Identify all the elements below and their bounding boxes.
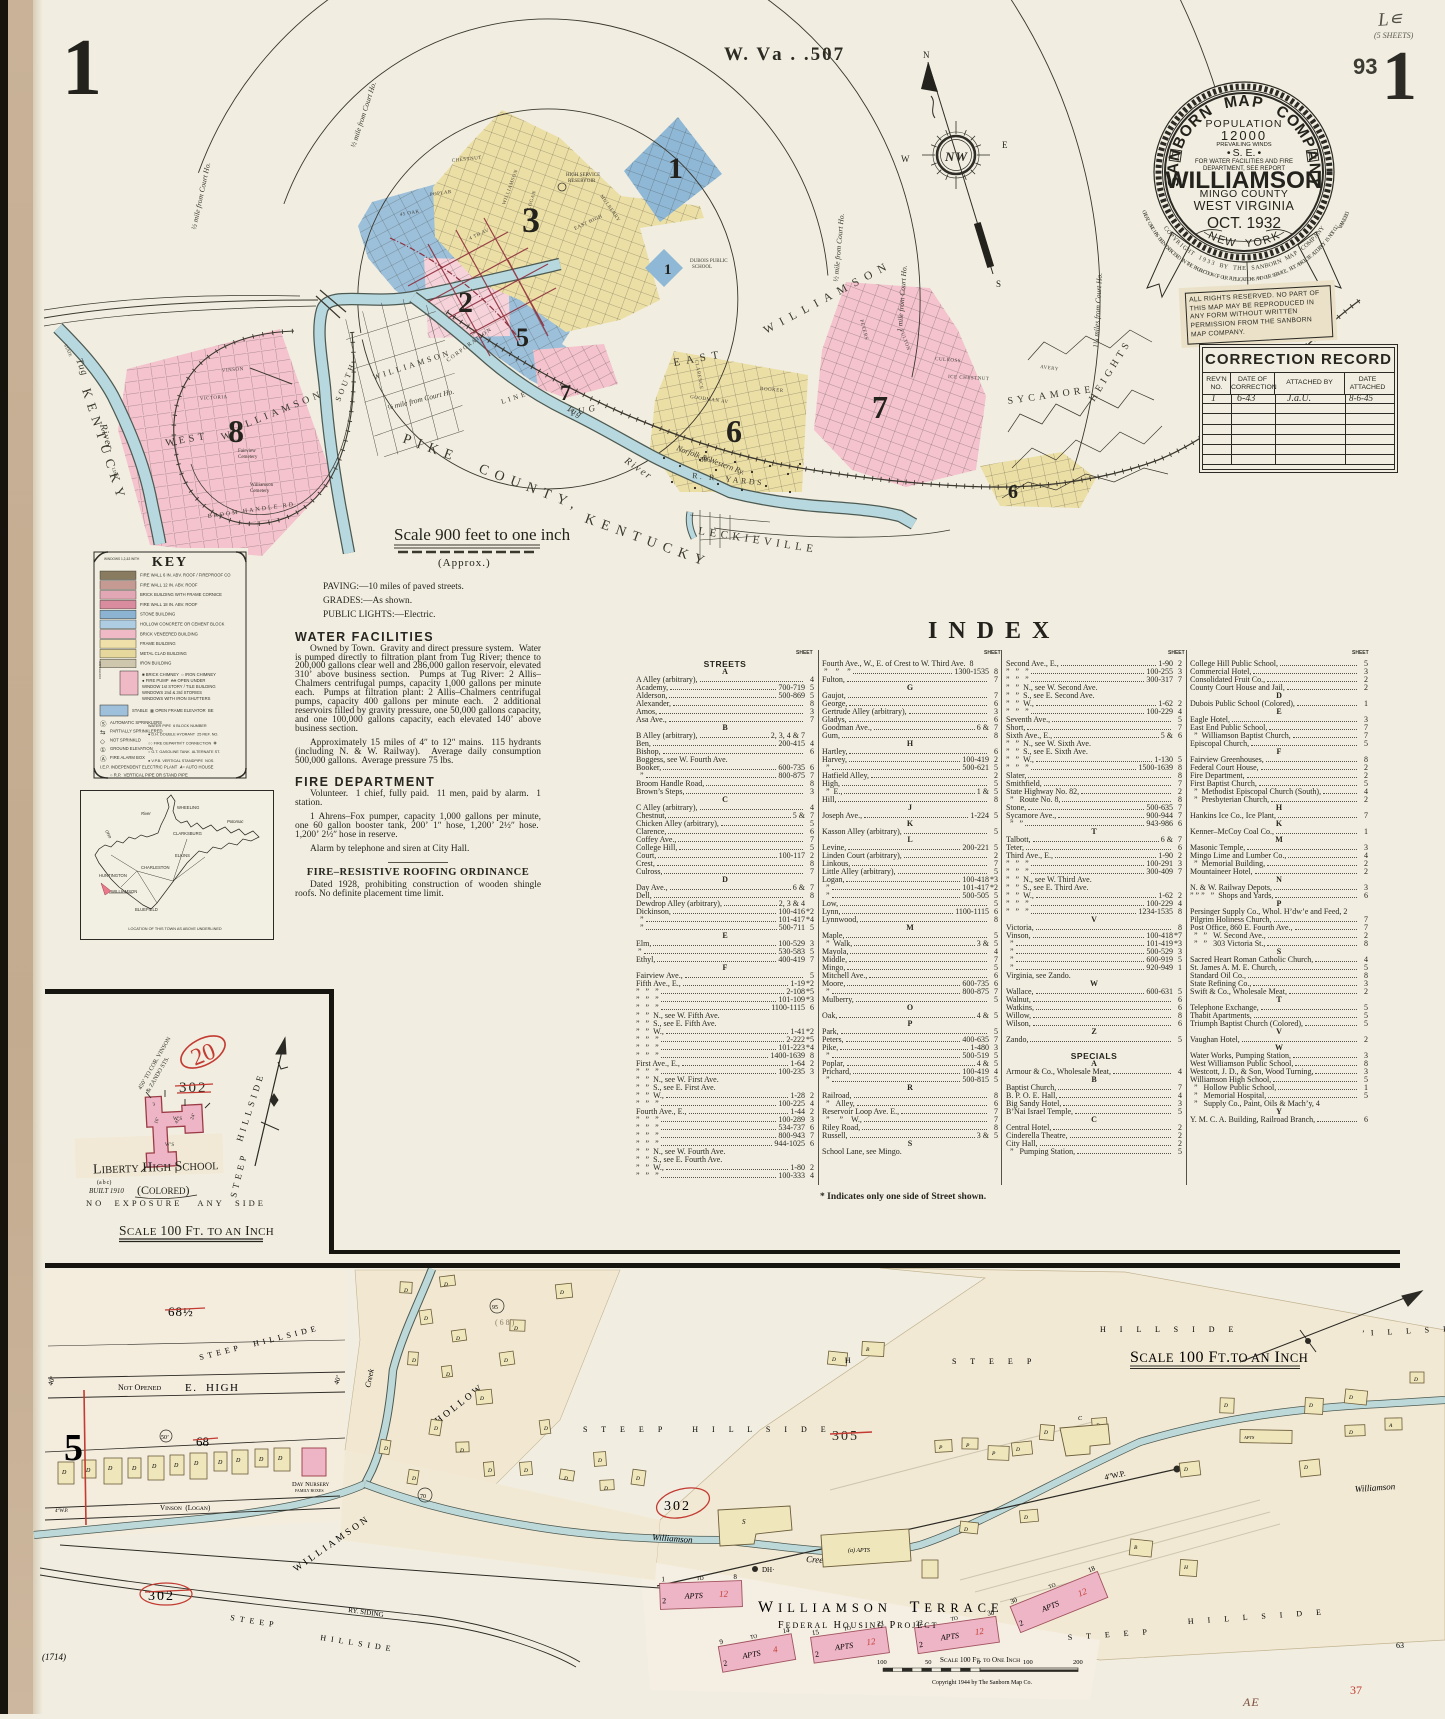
svg-text:H I L L S I D E: H I L L S I D E	[1100, 1325, 1239, 1334]
svg-text:D: D	[559, 1290, 564, 1296]
svg-text:• S. E. •: • S. E. •	[1227, 147, 1262, 159]
svg-text:D: D	[411, 1476, 416, 1482]
svg-text:D: D	[455, 1336, 460, 1342]
svg-text:S: S	[742, 1518, 746, 1526]
svg-text:½ mile from Court Ho.: ½ mile from Court Ho.	[348, 81, 378, 149]
svg-text:Potomac: Potomac	[227, 819, 244, 824]
svg-text:SCHOOL: SCHOOL	[692, 265, 712, 270]
svg-text:NOT OPENED: NOT OPENED	[118, 1383, 161, 1392]
svg-text:CONTINUED: CONTINUED	[98, 660, 102, 679]
svg-text:○○ FIRE DEPARTMʼT CONNECTION: ○○ FIRE DEPARTMʼT CONNECTION ✚	[148, 741, 217, 745]
svg-text:D: D	[193, 1461, 199, 1467]
svg-text:S T E E P H I L L S I D E: S T E E P H I L L S I D E	[583, 1425, 832, 1434]
svg-text:Ohio: Ohio	[104, 829, 113, 840]
svg-text:D: D	[411, 1358, 416, 1364]
svg-text:APTS: APTS	[1243, 1435, 1255, 1440]
svg-text:D: D	[107, 1466, 113, 1472]
svg-text:Ⓢ: Ⓢ	[100, 720, 107, 728]
svg-text:BRICK VENEERED BUILDING: BRICK VENEERED BUILDING	[140, 631, 198, 636]
svg-text:(a b c): (a b c)	[97, 1179, 111, 1186]
svg-text:STONE BUILDING: STONE BUILDING	[140, 612, 175, 617]
svg-text:①: ①	[100, 746, 106, 754]
svg-text:200: 200	[1073, 1659, 1083, 1666]
svg-text:W: W	[901, 154, 910, 164]
svg-text:○ R.P. VERTICAL PIPE OR STAND: ○ R.P. VERTICAL PIPE OR STAND PIPE	[110, 773, 188, 778]
svg-text:WATER PIPE 6 BLOCK NUMBER: WATER PIPE 6 BLOCK NUMBER	[148, 724, 207, 728]
svg-text:D: D	[563, 1476, 568, 1482]
svg-text:6: 6	[1008, 481, 1018, 503]
svg-text:IRON BUILDING: IRON BUILDING	[140, 661, 171, 666]
svg-text:D: D	[1348, 1395, 1353, 1401]
svg-text:FIRE WALL 12 IN. ABV. ROOF: FIRE WALL 12 IN. ABV. ROOF	[140, 582, 198, 587]
svg-text:D: D	[831, 1357, 836, 1363]
svg-text:5: 5	[516, 323, 529, 352]
svg-text:WINDOWS 2nd & 3rd STORIES: WINDOWS 2nd & 3rd STORIES	[142, 690, 202, 695]
svg-text:50: 50	[925, 1659, 932, 1666]
svg-text:A: A	[1388, 1423, 1393, 1429]
svg-text:● FIRE PUMP ⍾⍾ OPEN UNDER: ● FIRE PUMP ⍾⍾ OPEN UNDER	[142, 678, 205, 683]
svg-text:0: 0	[977, 1659, 980, 1666]
svg-text:PIKE: PIKE	[401, 432, 462, 466]
svg-text:SYCAMORE: SYCAMORE	[1007, 384, 1095, 407]
svg-text:D: D	[1015, 1447, 1020, 1453]
svg-text:Ⓐ: Ⓐ	[100, 755, 107, 763]
svg-text:METAL CLAD BUILDING: METAL CLAD BUILDING	[140, 651, 187, 656]
svg-text:(68): (68)	[495, 1318, 516, 1327]
svg-text:GROUND ELEVATION: GROUND ELEVATION	[110, 746, 153, 751]
svg-text:OCT. 1932: OCT. 1932	[1207, 215, 1281, 232]
svg-text:(1714): (1714)	[42, 1652, 66, 1662]
svg-text:WILLIAMSON: WILLIAMSON	[292, 1514, 372, 1575]
svg-text:NO EXPOSURE ANY SIDE: NO EXPOSURE ANY SIDE	[86, 1198, 266, 1208]
svg-text:302: 302	[664, 1499, 691, 1514]
svg-text:306: 306	[700, 456, 711, 464]
svg-text:D: D	[503, 1358, 508, 1364]
svg-text:● V.P.B. VERTICAL STANDPIPE N: ● V.P.B. VERTICAL STANDPIPE NOS.	[148, 759, 214, 763]
svg-text:D: D	[523, 1468, 528, 1474]
svg-text:70: 70	[420, 1494, 426, 1500]
svg-text:½ mile from Court Ho.: ½ mile from Court Ho.	[189, 161, 212, 230]
svg-text:D: D	[443, 1282, 448, 1288]
svg-text:SCALE 100 FT. TO AN INCH: SCALE 100 FT. TO AN INCH	[119, 1223, 274, 1238]
svg-text:Copyright 1944 by The Sanborn: Copyright 1944 by The Sanborn Map Co.	[932, 1680, 1033, 1686]
svg-text:RESERVOIR: RESERVOIR	[568, 179, 596, 184]
svg-text:D: D	[459, 1448, 464, 1454]
svg-text:50ʼ: 50ʼ	[161, 1435, 169, 1441]
svg-text:D: D	[597, 1458, 602, 1464]
svg-text:(a) APTS: (a) APTS	[848, 1547, 870, 1554]
svg-text:2: 2	[458, 286, 473, 319]
svg-text:WINDOWS WITH IRON SHUTTERS: WINDOWS WITH IRON SHUTTERS	[142, 696, 211, 701]
svg-text:S: S	[996, 279, 1001, 289]
svg-text:D: D	[1348, 1430, 1353, 1436]
svg-text:12: 12	[719, 1589, 729, 1599]
svg-text:7: 7	[560, 380, 571, 405]
svg-text:BLUEFIELD: BLUEFIELD	[135, 907, 158, 912]
svg-text:D: D	[1308, 1403, 1313, 1409]
svg-text:Cemetery: Cemetery	[238, 455, 258, 460]
svg-text:5: 5	[64, 1427, 83, 1469]
svg-text:D: D	[487, 1468, 492, 1474]
svg-text:Fairview: Fairview	[238, 449, 256, 454]
svg-text:HUNTINGTON: HUNTINGTON	[99, 873, 127, 878]
svg-text:68½: 68½	[168, 1304, 194, 1319]
svg-text:P: P	[938, 1445, 943, 1451]
svg-text:River: River	[141, 811, 151, 816]
svg-text:BRICK BUILDING WITH FRAME CORN: BRICK BUILDING WITH FRAME CORNICE	[140, 592, 222, 597]
svg-text:1: 1	[668, 152, 683, 185]
svg-text:○ G.T. GASOLINE TANK ALTERNAT: ○ G.T. GASOLINE TANK ALTERNATE ST.	[148, 750, 220, 754]
svg-text:100: 100	[1023, 1659, 1033, 1666]
svg-text:D: D	[131, 1466, 137, 1472]
svg-text:VINSON (LOGAN): VINSON (LOGAN)	[160, 1504, 211, 1512]
svg-text:95: 95	[492, 1305, 498, 1311]
svg-text:FOR WATER FACILITIES AND FIRE: FOR WATER FACILITIES AND FIRE	[1195, 159, 1293, 165]
svg-text:E: E	[1002, 140, 1008, 150]
svg-text:FIRE ALARM BOX: FIRE ALARM BOX	[110, 755, 145, 760]
svg-text:D: D	[151, 1464, 157, 1470]
svg-text:D: D	[173, 1463, 179, 1469]
svg-text:ELKINS: ELKINS	[175, 853, 190, 858]
svg-text:2: 2	[662, 1596, 666, 1605]
svg-text:FRAME BUILDING: FRAME BUILDING	[140, 641, 176, 646]
svg-text:NOT SPRINKLD: NOT SPRINKLD	[110, 737, 141, 742]
svg-text:DAY NURSERY: DAY NURSERY	[292, 1481, 330, 1488]
svg-text:CLARKSBURG: CLARKSBURG	[173, 831, 202, 836]
svg-text:LINE: LINE	[500, 390, 529, 406]
svg-text:SCALE 100 FT.TO AN INCH: SCALE 100 FT.TO AN INCH	[1130, 1349, 1308, 1366]
svg-text:HIGH SERVICE: HIGH SERVICE	[566, 173, 600, 178]
svg-text:HILLSIDE: HILLSIDE	[234, 1071, 266, 1143]
svg-text:37: 37	[1350, 1683, 1362, 1697]
svg-text:N: N	[1276, 257, 1283, 265]
svg-text:FIRE WALL 18 IN. ABV. ROOF: FIRE WALL 18 IN. ABV. ROOF	[140, 602, 198, 607]
svg-text:D: D	[235, 1458, 241, 1464]
svg-text:Y: Y	[1223, 263, 1229, 271]
svg-text:STABLE ▦ OPEN FRAME ELEVATOR: STABLE ▦ OPEN FRAME ELEVATOR BE	[132, 708, 214, 713]
svg-text:E: E	[1242, 265, 1246, 272]
svg-text:DUBOIS PUBLIC: DUBOIS PUBLIC	[690, 259, 728, 264]
svg-text:N: N	[923, 50, 930, 60]
svg-text:WHEELING: WHEELING	[177, 805, 199, 810]
svg-text:(COLORED): (COLORED)	[137, 1183, 190, 1197]
svg-text:FAMILY BOXES: FAMILY BOXES	[295, 1488, 324, 1493]
svg-text:302: 302	[179, 1080, 208, 1096]
svg-text:D: D	[445, 1372, 450, 1378]
svg-text:AVERY: AVERY	[1040, 365, 1059, 373]
svg-text:RY. SIDING: RY. SIDING	[348, 1606, 384, 1619]
svg-text:A E: A E	[1242, 1695, 1259, 1709]
svg-text:CHARLESTON: CHARLESTON	[141, 865, 170, 870]
svg-text:KENTUCKY: KENTUCKY	[583, 512, 713, 572]
svg-text:FEDERAL HOUSING PROJECT: FEDERAL HOUSING PROJECT	[778, 1620, 939, 1631]
svg-text:P: P	[965, 1443, 970, 1449]
svg-text:D: D	[61, 1470, 67, 1476]
svg-text:D: D	[479, 1396, 484, 1402]
svg-text:N W: N W	[944, 149, 968, 164]
svg-text:D: D	[383, 1446, 388, 1452]
svg-text:HOLLOW CONCRETE OR CEMENT BLOC: HOLLOW CONCRETE OR CEMENT BLOCK	[140, 622, 225, 627]
svg-text:STEEP: STEEP	[230, 1613, 279, 1629]
svg-text:Williamson: Williamson	[250, 483, 274, 488]
svg-text:7: 7	[872, 389, 888, 425]
svg-text:63: 63	[1396, 1641, 1404, 1650]
svg-text:● D.H. DOUBLE HYDRANT 25 REF.: ● D.H. DOUBLE HYDRANT 25 REF. NO.	[148, 733, 218, 737]
svg-text:WINDOWS 1,2,&3 WITH: WINDOWS 1,2,&3 WITH	[104, 557, 140, 561]
svg-text:WILLIAMSON TERRACE: WILLIAMSON TERRACE	[758, 1599, 1004, 1616]
svg-text:D: D	[1413, 1377, 1418, 1383]
svg-text:APTS: APTS	[683, 1591, 703, 1601]
svg-text:Cemetery: Cemetery	[250, 489, 270, 494]
svg-text:W’S: W’S	[165, 1143, 174, 1148]
svg-text:E. HIGH: E. HIGH	[185, 1382, 239, 1394]
svg-text:D: D	[217, 1460, 223, 1466]
svg-text:4ʺW.P.: 4ʺW.P.	[55, 1509, 68, 1514]
svg-text:12000: 12000	[1221, 128, 1267, 143]
svg-text:WINDOW 1st STORY / TILE BUILDI: WINDOW 1st STORY / TILE BUILDING	[142, 684, 216, 689]
svg-text:100: 100	[877, 1659, 887, 1666]
svg-text:D: D	[963, 1527, 968, 1533]
svg-text:STEEP: STEEP	[228, 1151, 249, 1199]
svg-text:A: A	[1238, 93, 1249, 110]
svg-text:BUILT 1910: BUILT 1910	[89, 1187, 124, 1195]
svg-text:6: 6	[726, 413, 742, 449]
svg-text:FIRE WALL 6 IN. ABV. ROOF / FI: FIRE WALL 6 IN. ABV. ROOF / FIREPROOF CO	[140, 573, 231, 578]
svg-text:WILLIAMSON: WILLIAMSON	[372, 348, 452, 382]
svg-text:Scale 900 feet to one inch: Scale 900 feet to one inch	[394, 525, 571, 544]
svg-text:D: D	[1183, 1467, 1188, 1473]
svg-text:1: 1	[664, 262, 672, 278]
svg-text:DH·: DH·	[762, 1566, 774, 1574]
svg-text:I.E.P. INDEPENDENT ELECTRIC PL: I.E.P. INDEPENDENT ELECTRIC PLANT 𝐴= AUT…	[100, 765, 214, 770]
svg-text:3: 3	[1210, 259, 1215, 267]
svg-text:KEY: KEY	[152, 555, 188, 570]
svg-text:D: D	[1303, 1465, 1308, 1471]
svg-text:P: P	[991, 1451, 996, 1457]
svg-text:LECKIEVILLE: LECKIEVILLE	[698, 525, 819, 556]
svg-text:■ BRICK CHIMNEY ○ IRON CHIMNE: ■ BRICK CHIMNEY ○ IRON CHIMNEY	[142, 672, 216, 677]
svg-text:D: D	[635, 1476, 640, 1482]
svg-text:⇆: ⇆	[100, 730, 106, 737]
svg-text:D: D	[543, 1426, 548, 1432]
svg-text:TO: TO	[696, 1576, 703, 1582]
svg-text:D: D	[403, 1288, 408, 1294]
svg-text:D: D	[423, 1316, 428, 1322]
svg-text:68: 68	[196, 1434, 209, 1449]
svg-text:HILLSIDE: HILLSIDE	[320, 1633, 396, 1654]
svg-text:D: D	[603, 1486, 608, 1492]
svg-text:D: D	[258, 1457, 264, 1463]
svg-text:½ mile from Court Ho.: ½ mile from Court Ho.	[831, 213, 846, 282]
svg-text:D: D	[433, 1426, 438, 1432]
svg-text:¼ mile from Court Ho.: ¼ mile from Court Ho.	[386, 387, 455, 412]
svg-text:WEST VIRGINIA: WEST VIRGINIA	[1194, 199, 1295, 213]
svg-text:LOCATION OF THIS TOWN AS ABOVE: LOCATION OF THIS TOWN AS ABOVE UNDERLINE…	[128, 927, 221, 931]
svg-text:D: D	[1023, 1515, 1028, 1521]
svg-text:TO: TO	[950, 1616, 958, 1623]
svg-text:(Approx.): (Approx.)	[438, 557, 491, 569]
svg-text:305: 305	[832, 1429, 859, 1444]
svg-text:D: D	[1223, 1403, 1228, 1409]
svg-text:D: D	[1043, 1430, 1048, 1436]
svg-text:D: D	[277, 1456, 283, 1462]
svg-text:S T E E P: S T E E P	[952, 1357, 1037, 1366]
svg-text:TO: TO	[750, 1634, 758, 1641]
